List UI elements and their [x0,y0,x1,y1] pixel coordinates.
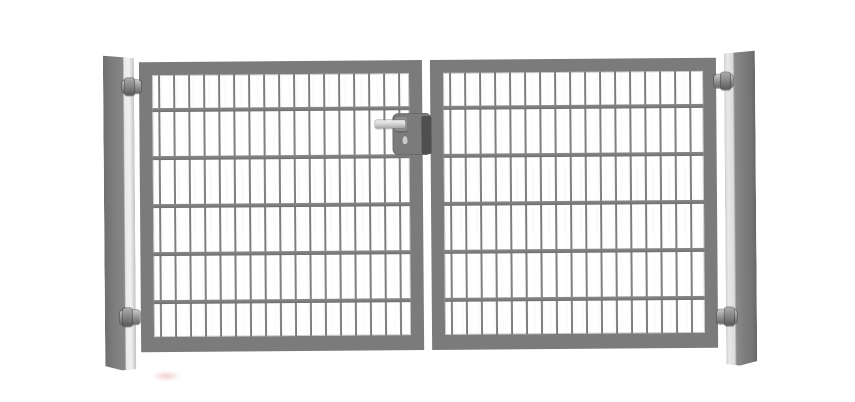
mesh-horizontal-wire [153,250,410,256]
hinge-bolt-nut-icon [721,73,730,90]
pink-artifact-smudge [152,371,180,381]
mesh-horizontal-wire [444,200,704,206]
lock-stile-shadow [421,116,431,154]
mesh-horizontal-wire [152,106,409,112]
mesh-horizontal-wire [443,104,703,110]
hinge-bolt-nut-icon [125,78,134,95]
hinge-bolt-nut-icon [725,308,734,326]
mesh-horizontal-wire [444,248,704,254]
mesh-horizontal-wire [153,202,410,208]
mesh-horizontal-wire [444,152,704,158]
mesh-horizontal-wire [445,296,705,302]
keyhole-icon [402,136,407,144]
hinge-top-left [122,78,141,95]
right-wing-mesh [443,71,705,335]
right-gate-wing [430,58,718,350]
mesh-horizontal-wire [153,154,410,160]
left-wing-mesh [152,73,411,337]
hinge-bottom-left [120,308,140,326]
gate-handle-icon [375,120,405,128]
product-image-canvas [0,0,855,402]
hinge-bottom-right [717,308,737,326]
hinge-bolt-nut-icon [123,308,132,326]
mesh-horizontal-wire [154,298,411,304]
left-gate-wing [139,60,424,352]
hinge-top-right [714,73,733,90]
gate-assembly [0,0,855,402]
